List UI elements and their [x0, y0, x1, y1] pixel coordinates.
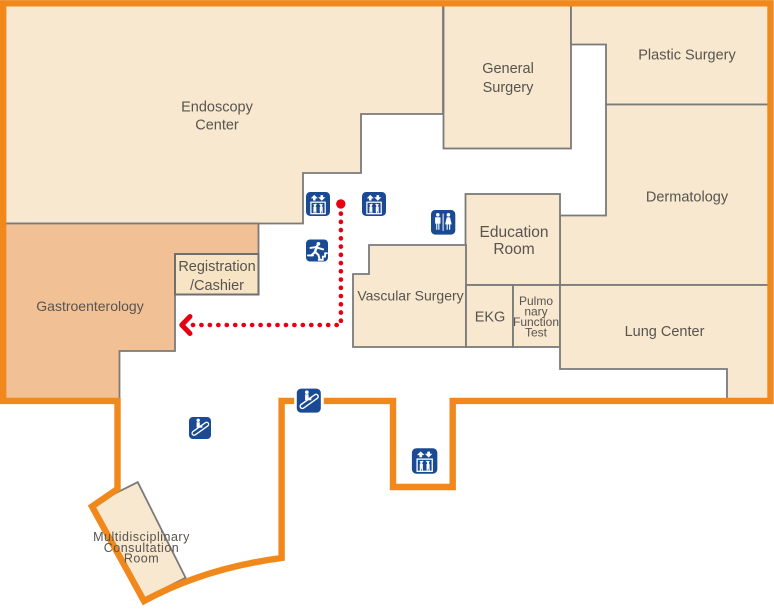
svg-text:Gastroenterology: Gastroenterology: [36, 298, 143, 314]
svg-text:Education: Education: [480, 224, 549, 241]
svg-text:Center: Center: [195, 118, 239, 134]
svg-text:Vascular Surgery: Vascular Surgery: [357, 288, 463, 304]
svg-text:Endoscopy: Endoscopy: [181, 100, 253, 116]
svg-text:EKG: EKG: [475, 310, 506, 326]
svg-text:Room: Room: [493, 241, 534, 258]
svg-text:Test: Test: [525, 326, 548, 340]
svg-text:Surgery: Surgery: [483, 80, 535, 96]
svg-text:/Cashier: /Cashier: [190, 278, 244, 294]
svg-text:Lung Center: Lung Center: [625, 324, 705, 340]
svg-text:Dermatology: Dermatology: [646, 190, 729, 206]
svg-text:Room: Room: [124, 552, 159, 566]
svg-text:General: General: [482, 61, 534, 77]
svg-text:Plastic Surgery: Plastic Surgery: [638, 48, 736, 64]
svg-text:Registration: Registration: [178, 259, 255, 275]
